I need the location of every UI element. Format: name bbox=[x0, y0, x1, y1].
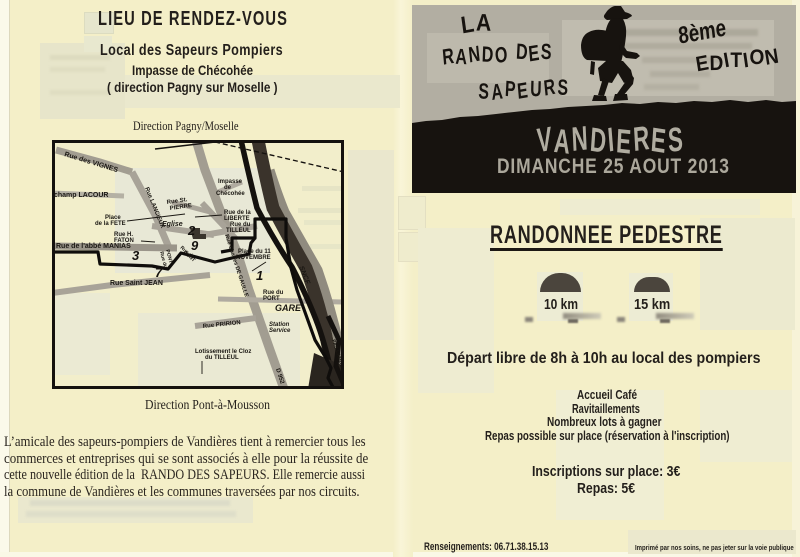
svg-text:3: 3 bbox=[132, 248, 140, 263]
svg-text:7: 7 bbox=[155, 265, 163, 280]
svg-text:champ LACOUR: champ LACOUR bbox=[54, 192, 108, 199]
svg-text:de la FETE: de la FETE bbox=[95, 221, 126, 227]
svg-text:TILLEUL: TILLEUL bbox=[226, 228, 251, 234]
svg-text:PORT: PORT bbox=[263, 296, 280, 302]
svg-text:Eglise: Eglise bbox=[162, 221, 183, 228]
svg-text:Chécohée: Chécohée bbox=[216, 191, 245, 197]
svg-text:Rue de l'abbé MANIAS: Rue de l'abbé MANIAS bbox=[56, 243, 131, 250]
svg-text:2: 2 bbox=[187, 223, 196, 238]
svg-text:1: 1 bbox=[256, 268, 263, 283]
svg-text:Rue Saint JEAN: Rue Saint JEAN bbox=[110, 280, 163, 287]
svg-text:NOVEMBRE: NOVEMBRE bbox=[236, 255, 271, 261]
svg-text:Service: Service bbox=[269, 328, 291, 334]
svg-text:9: 9 bbox=[191, 238, 199, 253]
svg-text:du TILLEUL: du TILLEUL bbox=[205, 355, 239, 361]
svg-text:GARE: GARE bbox=[275, 303, 302, 313]
